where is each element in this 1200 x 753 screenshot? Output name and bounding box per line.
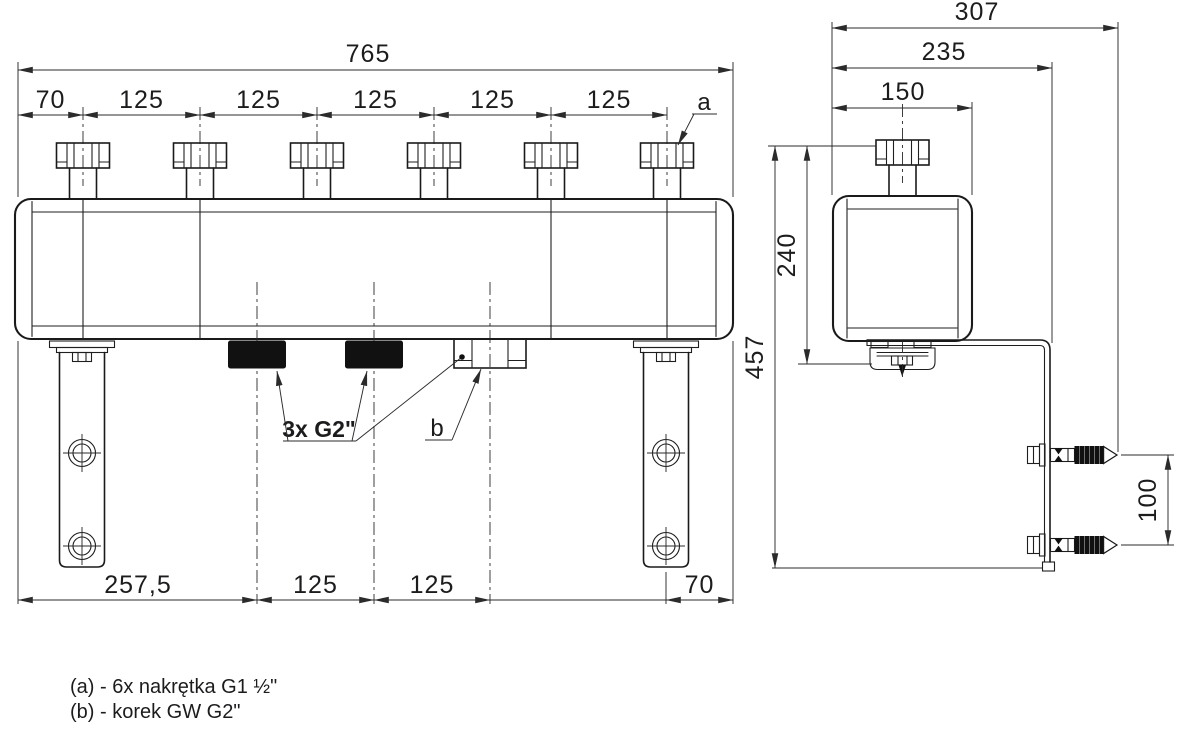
dim-pitch4-label: 125 <box>470 86 515 114</box>
manifold-technical-drawing: 765 70 125 125 125 125 125 257,5 125 125… <box>0 0 1200 753</box>
legend-line-a: (a) - 6x nakrętka G1 ½" <box>70 676 277 698</box>
dim-body-height-label: 240 <box>773 233 801 278</box>
dim-total-height-label: 457 <box>741 335 769 380</box>
dim-bottom-right-label: 70 <box>685 571 715 599</box>
dim-bottom-pitch2-label: 125 <box>410 571 455 599</box>
union-nut-4 <box>408 107 461 199</box>
union-nut-5 <box>525 107 578 199</box>
dim-pitch5-label: 125 <box>587 86 632 114</box>
wall-anchor-bottom <box>1028 534 1118 556</box>
dim-pitch3-label: 125 <box>353 86 398 114</box>
side-view: 307 235 150 457 240 100 <box>741 0 1174 571</box>
legend: (a) - 6x nakrętka G1 ½" (b) - korek GW G… <box>70 676 277 723</box>
threaded-port-2 <box>346 341 403 368</box>
label-ports: 3x G2" <box>282 416 356 442</box>
front-view: 765 70 125 125 125 125 125 257,5 125 125… <box>15 40 733 604</box>
dim-total-width-label: 765 <box>346 40 391 68</box>
callout-a: a <box>678 89 717 145</box>
manifold-body-side <box>833 196 972 341</box>
dim-pitch2-label: 125 <box>236 86 281 114</box>
legend-line-b: (b) - korek GW G2" <box>70 701 240 723</box>
union-nut-2 <box>174 107 227 199</box>
label-a: a <box>697 89 711 116</box>
dim-bottom-pitch1-label: 125 <box>293 571 338 599</box>
threaded-port-1 <box>229 341 286 368</box>
dim-anchor-spacing-label: 100 <box>1134 478 1162 523</box>
mounting-bracket-right <box>634 341 699 567</box>
dim-bracket-depth-label: 235 <box>922 38 967 66</box>
dim-bottom-left-label: 257,5 <box>104 571 172 599</box>
union-nut-6 <box>641 107 694 199</box>
leader-dot <box>459 354 465 360</box>
dim-left-offset-label: 70 <box>36 86 66 114</box>
union-nut-3 <box>291 107 344 199</box>
front-extension-lines <box>18 62 733 604</box>
dim-pitch1-label: 125 <box>119 86 164 114</box>
union-nut-1 <box>57 107 110 199</box>
wall-bracket <box>867 340 1055 571</box>
dim-body-depth-label: 150 <box>881 78 926 106</box>
technical-drawing-page: 765 70 125 125 125 125 125 257,5 125 125… <box>0 0 1200 753</box>
mounting-bracket-left <box>50 341 115 567</box>
union-nut-side <box>876 104 929 196</box>
dim-total-depth-label: 307 <box>955 0 1000 26</box>
label-b: b <box>430 415 443 442</box>
wall-anchor-top <box>1028 444 1118 466</box>
